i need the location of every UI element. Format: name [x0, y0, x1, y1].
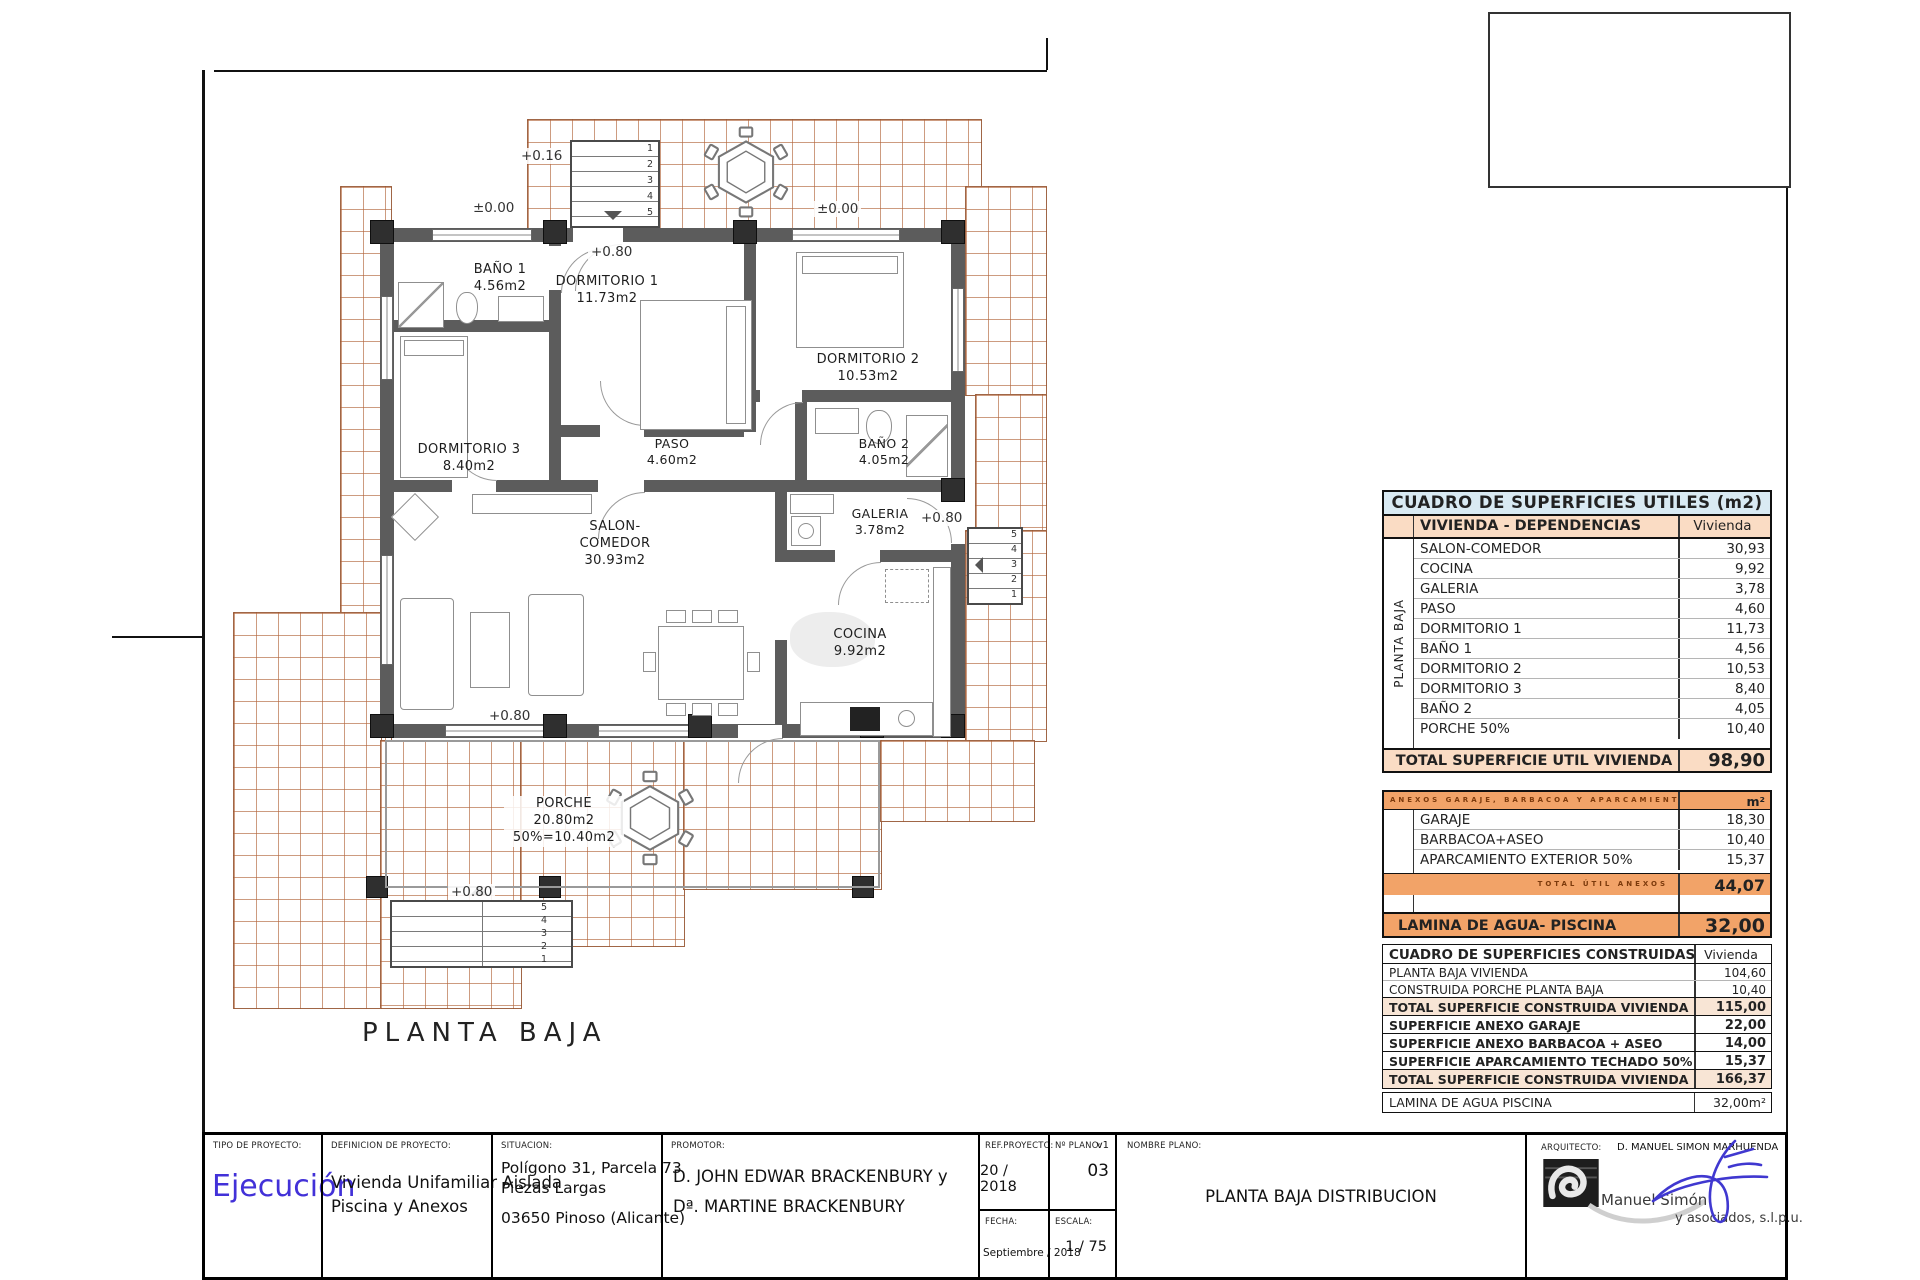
patio-left	[233, 612, 382, 1009]
table-row: SUPERFICIE ANEXO GARAJE22,00	[1383, 1016, 1771, 1034]
cell-promotor: PROMOTOR: D. JOHN EDWAR BRACKENBURY y Dª…	[661, 1135, 978, 1277]
stair-porch: 5 4 3 2 1	[390, 900, 573, 968]
room-area: 3.78m2	[855, 522, 905, 537]
wall	[775, 550, 835, 562]
dining-table	[658, 626, 744, 700]
pillar	[370, 714, 394, 738]
room-area: 8.40m2	[443, 459, 495, 474]
cell-name: GALERIA	[1414, 579, 1678, 598]
sideboard	[472, 494, 592, 514]
table-row: BARBACOA+ASEO10,40	[1414, 830, 1770, 850]
site-address: Piezas Largas	[501, 1179, 606, 1197]
terrace-right-upper	[965, 186, 1047, 396]
pillow	[404, 340, 464, 356]
cell-value: 15,37	[1678, 850, 1770, 870]
cell-value: 10,40	[1678, 830, 1770, 849]
chair	[718, 703, 738, 716]
table-title: ANEXOS GARAJE, BARBACOA Y APARCAMIENTO	[1384, 792, 1678, 809]
field-label: ARQUITECTO:	[1541, 1143, 1601, 1153]
cell-name: SUPERFICIE APARCAMIENTO TECHADO 50%	[1383, 1052, 1694, 1069]
cell-name: SUPERFICIE ANEXO GARAJE	[1383, 1016, 1694, 1033]
room-label-salon: SALON-COMEDOR 30.93m2	[555, 519, 675, 570]
field-label: PROMOTOR:	[671, 1141, 725, 1151]
plan-version: v1	[1097, 1140, 1109, 1151]
sink	[815, 408, 859, 434]
cell-value: 14,00	[1694, 1034, 1771, 1051]
table-row: DORMITORIO 210,53	[1414, 659, 1770, 679]
cell-value: 4,05	[1678, 699, 1770, 718]
scale-value: 1 / 75	[1065, 1239, 1107, 1255]
cell-name: TOTAL SUPERFICIE CONSTRUIDA VIVIENDA	[1383, 998, 1694, 1015]
room-label-banio2: BAÑO 2 4.05m2	[834, 436, 934, 469]
field-label: FECHA:	[985, 1217, 1017, 1227]
table-row: SUPERFICIE ANEXO BARBACOA + ASEO14,00	[1383, 1034, 1771, 1052]
room-label-cocina: COCINA 9.92m2	[800, 627, 920, 661]
side-label: PLANTA BAJA	[1392, 599, 1406, 688]
room-label-dormitorio2: DORMITORIO 2 10.53m2	[808, 352, 928, 386]
table-anexos: ANEXOS GARAJE, BARBACOA Y APARCAMIENTO m…	[1382, 790, 1772, 916]
pillar	[543, 220, 567, 244]
cell-situacion: SITUACION: Polígono 31, Parcela 73 Pieza…	[491, 1135, 661, 1277]
column-header: Vivienda	[1678, 516, 1770, 537]
total-value: 44,07	[1678, 874, 1770, 895]
cell-name: LAMINA DE AGUA- PISCINA	[1384, 914, 1678, 936]
plan-number: 03	[1087, 1161, 1109, 1181]
field-label: REF.PROYECTO:	[985, 1141, 1053, 1151]
room-name: DORMITORIO 3	[418, 442, 521, 457]
door-gap	[452, 480, 496, 492]
cell-value: 4,56	[1678, 639, 1770, 658]
field-label: TIPO DE PROYECTO:	[213, 1141, 302, 1151]
floor-plan: 1 2 3 4 5	[0, 0, 1100, 1100]
room-label-paso: PASO 4.60m2	[612, 436, 732, 469]
chair	[666, 610, 686, 623]
room-name: COCINA	[833, 627, 886, 642]
coffee-table	[470, 612, 510, 688]
table-body: PLANTA BAJA SALON-COMEDOR30,93 COCINA9,9…	[1384, 539, 1770, 748]
level-marker: +0.80	[486, 708, 533, 724]
side-label-cell: PLANTA BAJA	[1384, 539, 1414, 748]
pillar	[941, 220, 965, 244]
cell-name: APARCAMIENTO EXTERIOR 50%	[1414, 850, 1678, 870]
chair	[718, 610, 738, 623]
level-marker: ±0.00	[470, 200, 517, 216]
table-header-row: ANEXOS GARAJE, BARBACOA Y APARCAMIENTO m…	[1384, 792, 1770, 810]
table-row: SALON-COMEDOR30,93	[1414, 539, 1770, 559]
cell-name: PLANTA BAJA VIVIENDA	[1383, 964, 1694, 980]
cell-value: 115,00	[1694, 998, 1771, 1015]
level-marker: +0.80	[448, 884, 495, 900]
chair	[692, 703, 712, 716]
cell-value: 10,40	[1678, 719, 1770, 739]
table-superficies-utiles: CUADRO DE SUPERFICIES UTILES (m2) VIVIEN…	[1382, 490, 1772, 773]
room-name: DORMITORIO 1	[556, 274, 659, 289]
cell-name: COCINA	[1414, 559, 1678, 578]
terrace-right-mid	[975, 394, 1047, 532]
sheet-name: PLANTA BAJA DISTRIBUCION	[1117, 1187, 1525, 1206]
pillar	[733, 220, 757, 244]
drawing-sheet: 1 2 3 4 5	[0, 0, 1920, 1280]
table-rows: GARAJE18,30 BARBACOA+ASEO10,40 APARCAMIE…	[1414, 810, 1770, 873]
table-row: PORCHE 50%10,40	[1414, 719, 1770, 739]
washer-drum	[798, 523, 814, 539]
room-label-porche: PORCHE 20.80m2 50%=10.40m2	[504, 796, 624, 847]
cell-name: DORMITORIO 1	[1414, 619, 1678, 638]
kitchen-sink	[898, 710, 915, 727]
pillar	[941, 478, 965, 502]
room-area: 4.05m2	[859, 452, 909, 467]
table-row: BAÑO 14,56	[1414, 639, 1770, 659]
pillar	[688, 714, 712, 738]
level-marker: +0.16	[518, 148, 565, 164]
room-area: 30.93m2	[585, 553, 646, 568]
window	[432, 229, 532, 241]
cell-name: GARAJE	[1414, 810, 1678, 829]
table-title: CUADRO DE SUPERFICIES UTILES (m2)	[1384, 492, 1770, 516]
table-row: PLANTA BAJA VIVIENDA104,60	[1383, 964, 1771, 981]
table-row: TOTAL SUPERFICIE CONSTRUIDA VIVIENDA + A…	[1383, 1070, 1771, 1088]
window	[598, 725, 698, 737]
cell-value: 10,40	[1694, 981, 1771, 997]
wall	[880, 550, 951, 562]
chair	[666, 703, 686, 716]
cell-value: 30,93	[1678, 539, 1770, 558]
field-label: SITUACION:	[501, 1141, 552, 1151]
cell-plano-escala: Nº PLANO: v1 03 ESCALA: 1 / 75	[1048, 1135, 1115, 1277]
field-label: Nº PLANO:	[1055, 1141, 1102, 1151]
pillow	[802, 256, 898, 274]
divider	[1050, 1209, 1115, 1211]
table-header-row: CUADRO DE SUPERFICIES CONSTRUIDAS (m2) V…	[1383, 945, 1771, 964]
level-marker: ±0.00	[814, 201, 861, 217]
pillar	[370, 220, 394, 244]
stair-top-entry: 1 2 3 4 5	[570, 140, 660, 228]
cell-name: CONSTRUIDA PORCHE PLANTA BAJA	[1383, 981, 1694, 997]
room-label-banio1: BAÑO 1 4.56m2	[440, 262, 560, 296]
cell-value: 15,37	[1694, 1052, 1771, 1069]
cell-name: BAÑO 2	[1414, 699, 1678, 718]
kitchen-cabinet	[885, 569, 929, 603]
table-row: TOTAL SUPERFICIE CONSTRUIDA VIVIENDA115,…	[1383, 998, 1771, 1016]
door-gap	[598, 480, 644, 492]
sheet-corner-box	[1488, 12, 1791, 188]
room-area2: 50%=10.40m2	[513, 830, 615, 845]
table-title: CUADRO DE SUPERFICIES CONSTRUIDAS (m2)	[1383, 945, 1694, 963]
project-ref: 20 / 2018	[980, 1163, 1043, 1195]
cell-name: BAÑO 1	[1414, 639, 1678, 658]
door-gap	[760, 390, 802, 402]
cell-name: DORMITORIO 3	[1414, 679, 1678, 698]
toilet	[456, 292, 478, 324]
kitchen-counter	[933, 567, 951, 737]
column-header: VIVIENDA - DEPENDENCIAS	[1414, 516, 1678, 537]
plan-title: PLANTA BAJA	[362, 1018, 608, 1048]
cell-name: SALON-COMEDOR	[1414, 539, 1678, 558]
table-row: SUPERFICIE APARCAMIENTO TECHADO 50%15,37	[1383, 1052, 1771, 1070]
window	[792, 229, 900, 241]
patio-right-ext	[880, 740, 1035, 822]
pillow	[726, 306, 746, 424]
sink	[498, 296, 544, 322]
cell-arquitecto: ARQUITECTO: D. MANUEL SIMON MARHUENDA Ma…	[1525, 1135, 1791, 1277]
column-header: Vivienda	[1694, 945, 1771, 963]
cell-value: 10,53	[1678, 659, 1770, 678]
cell-tipo-proyecto: TIPO DE PROYECTO: Ejecución	[205, 1135, 321, 1277]
door-gap	[738, 725, 782, 738]
row-lamina-piscina-2: LAMINA DE AGUA PISCINA 32,00m²	[1382, 1092, 1772, 1113]
stair-arrow-icon	[604, 211, 622, 220]
total-label: TOTAL ÚTIL ANEXOS	[1384, 874, 1678, 895]
cell-value: 104,60	[1694, 964, 1771, 980]
cell-value: 4,60	[1678, 599, 1770, 618]
project-definition: Piscina y Anexos	[331, 1197, 468, 1216]
cell-value: 32,00m²	[1694, 1093, 1771, 1112]
cell-value: 32,00	[1678, 914, 1770, 936]
cell-ref-fecha: REF.PROYECTO: 20 / 2018 FECHA: Septiembr…	[978, 1135, 1048, 1277]
terrace-dining-set	[694, 122, 798, 222]
chair	[643, 652, 656, 672]
room-name: DORMITORIO 2	[817, 352, 920, 367]
table-header-row: VIVIENDA - DEPENDENCIAS Vivienda	[1384, 516, 1770, 539]
room-label-dormitorio1: DORMITORIO 1 11.73m2	[547, 274, 667, 308]
table-total-row: TOTAL ÚTIL ANEXOS 44,07	[1384, 873, 1770, 895]
table-row: DORMITORIO 38,40	[1414, 679, 1770, 699]
field-label: DEFINICION DE PROYECTO:	[331, 1141, 451, 1151]
cell-value: 3,78	[1678, 579, 1770, 598]
cell-name: BARBACOA+ASEO	[1414, 830, 1678, 849]
sofa	[400, 598, 454, 710]
table-row: COCINA9,92	[1414, 559, 1770, 579]
room-area: 4.56m2	[474, 279, 526, 294]
developer-name: Dª. MARTINE BRACKENBURY	[673, 1197, 905, 1216]
chair	[692, 610, 712, 623]
total-value: 98,90	[1678, 750, 1770, 771]
door-gap	[573, 228, 623, 244]
room-name: BAÑO 1	[474, 262, 527, 277]
column-header: m²	[1678, 792, 1770, 809]
room-area: 10.53m2	[838, 369, 899, 384]
table-total-row: TOTAL SUPERFICIE UTIL VIVIENDA 98,90	[1384, 748, 1770, 771]
room-name: GALERIA	[852, 506, 909, 521]
room-name: BAÑO 2	[859, 436, 910, 451]
pillar	[543, 714, 567, 738]
cell-definicion: DEFINICION DE PROYECTO: Vivienda Unifami…	[321, 1135, 491, 1277]
cell-value: 11,73	[1678, 619, 1770, 638]
divider	[980, 1209, 1048, 1211]
level-marker: +0.80	[918, 510, 965, 526]
site-address: Polígono 31, Parcela 73	[501, 1159, 682, 1177]
stair-galeria: 5 4 3 2 1	[967, 527, 1023, 605]
developer-name: D. JOHN EDWAR BRACKENBURY y	[673, 1167, 948, 1186]
table-rows: SALON-COMEDOR30,93 COCINA9,92 GALERIA3,7…	[1414, 539, 1770, 748]
cell-value: 22,00	[1694, 1016, 1771, 1033]
field-label: NOMBRE PLANO:	[1127, 1141, 1201, 1151]
room-name: PASO	[655, 436, 690, 451]
room-area: 11.73m2	[577, 291, 638, 306]
room-area: 4.60m2	[647, 452, 697, 467]
cell-name: TOTAL SUPERFICIE CONSTRUIDA VIVIENDA + A…	[1383, 1070, 1694, 1088]
cell-value: 18,30	[1678, 810, 1770, 829]
room-label-dormitorio3: DORMITORIO 3 8.40m2	[409, 442, 529, 476]
room-area: 20.80m2	[534, 813, 595, 828]
total-label: TOTAL SUPERFICIE UTIL VIVIENDA	[1384, 750, 1678, 771]
cell-value: 9,92	[1678, 559, 1770, 578]
cell-value: 166,37	[1694, 1070, 1771, 1088]
architect-signature	[1649, 1137, 1779, 1241]
corner-cell	[1384, 516, 1414, 537]
cell-nombre-plano: NOMBRE PLANO: PLANTA BAJA DISTRIBUCION	[1115, 1135, 1525, 1277]
window	[952, 288, 964, 372]
shower	[398, 282, 444, 328]
cell-name: PORCHE 50%	[1414, 719, 1678, 739]
table-row: DORMITORIO 111,73	[1414, 619, 1770, 639]
stair-center-line	[482, 902, 483, 966]
room-name: SALON-COMEDOR	[580, 519, 651, 551]
hob	[850, 707, 880, 731]
table-construidas: CUADRO DE SUPERFICIES CONSTRUIDAS (m2) V…	[1382, 944, 1772, 1089]
sofa	[528, 594, 584, 696]
cell-value: 8,40	[1678, 679, 1770, 698]
row-lamina-piscina: LAMINA DE AGUA- PISCINA 32,00	[1382, 912, 1772, 938]
cell-name: SUPERFICIE ANEXO BARBACOA + ASEO	[1383, 1034, 1694, 1051]
table-row: GARAJE18,30	[1414, 810, 1770, 830]
side-label-cell	[1384, 810, 1414, 873]
table-row: CONSTRUIDA PORCHE PLANTA BAJA10,40	[1383, 981, 1771, 998]
chair	[747, 652, 760, 672]
cell-name: PASO	[1414, 599, 1678, 618]
table-row: BAÑO 24,05	[1414, 699, 1770, 719]
table-row: APARCAMIENTO EXTERIOR 50%15,37	[1414, 850, 1770, 870]
room-area: 9.92m2	[834, 644, 886, 659]
cell-name: DORMITORIO 2	[1414, 659, 1678, 678]
field-label: ESCALA:	[1055, 1217, 1092, 1227]
title-block: TIPO DE PROYECTO: Ejecución DEFINICION D…	[202, 1132, 1788, 1280]
room-name: PORCHE	[536, 796, 592, 811]
table-row: GALERIA3,78	[1414, 579, 1770, 599]
level-marker: +0.80	[588, 244, 635, 260]
window	[381, 296, 393, 380]
cell-name: LAMINA DE AGUA PISCINA	[1383, 1093, 1694, 1112]
table-row: PASO4,60	[1414, 599, 1770, 619]
stair-arrow-icon	[975, 557, 983, 573]
table-body: GARAJE18,30 BARBACOA+ASEO10,40 APARCAMIE…	[1384, 810, 1770, 873]
wall	[775, 640, 787, 738]
site-address: 03650 Pinoso (Alicante)	[501, 1209, 685, 1227]
window	[381, 555, 393, 665]
